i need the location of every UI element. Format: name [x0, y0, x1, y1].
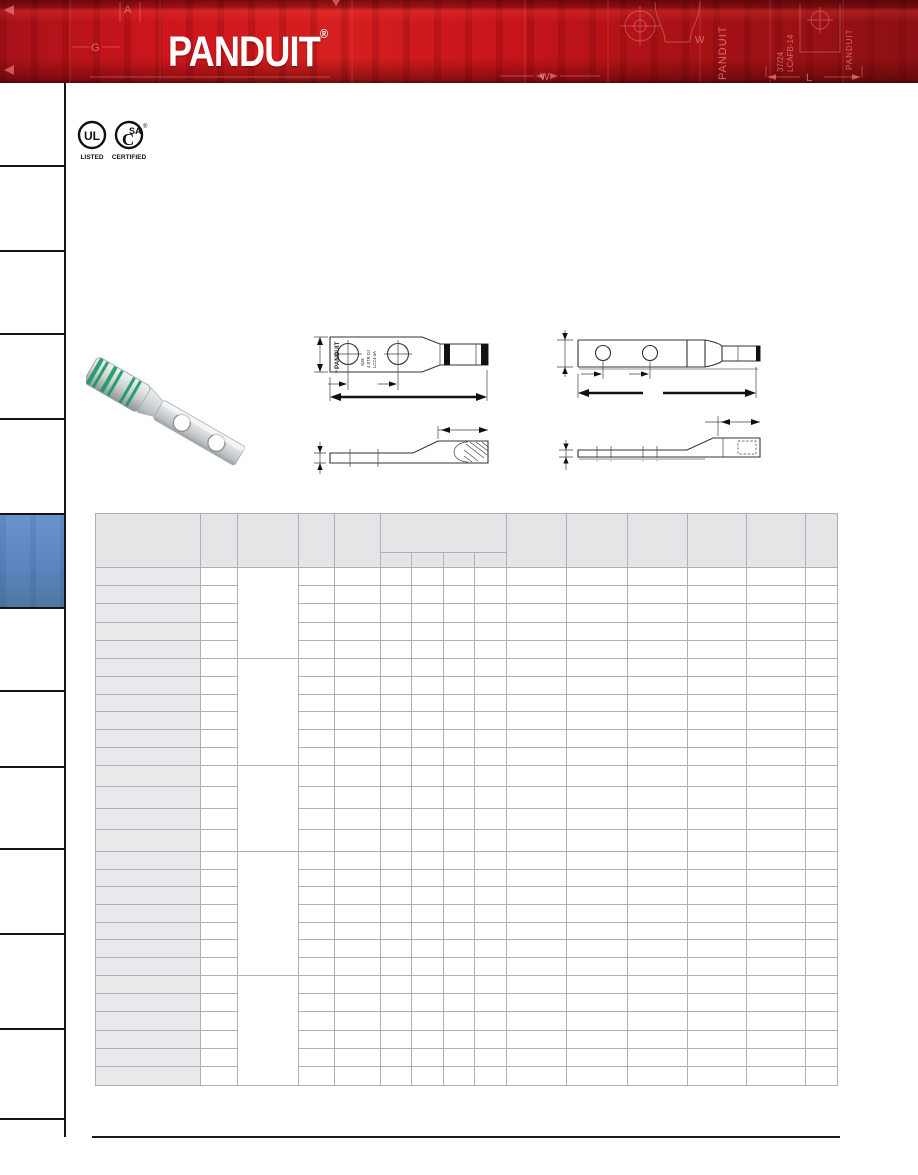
header-cell — [747, 514, 806, 568]
table-cell — [335, 975, 381, 993]
table-row — [96, 748, 838, 766]
motif-vertical-panduit-1: PANDUIT — [717, 26, 729, 80]
sidebar-tab-5 — [0, 418, 64, 513]
row-label-cell — [96, 869, 201, 887]
banner-motif: A G W W L PANDUIT 37/24 LCAFB-14 PANDUIT — [0, 0, 918, 83]
table-cell — [412, 922, 444, 940]
table-cell — [475, 787, 507, 809]
sidebar-tab-3 — [0, 250, 64, 333]
lug-tongue — [153, 400, 245, 466]
table-row — [96, 694, 838, 712]
table-cell — [628, 604, 688, 622]
table-cell — [688, 712, 747, 730]
table-cell — [806, 851, 838, 869]
sidebar-tab-9 — [0, 766, 64, 848]
table-cell — [628, 1012, 688, 1030]
csa-certified-label: CERTIFIED — [112, 154, 147, 161]
table-cell — [444, 1067, 475, 1085]
hole-1 — [596, 346, 611, 361]
table-cell — [747, 712, 806, 730]
table-cell — [335, 830, 381, 852]
table-cell — [806, 568, 838, 586]
table-cell — [299, 808, 335, 830]
table-cell — [335, 604, 381, 622]
table-cell — [475, 1049, 507, 1067]
table-cell — [299, 940, 335, 958]
spec-table — [95, 513, 838, 1086]
table-cell — [747, 787, 806, 809]
table-cell — [688, 568, 747, 586]
header-cell — [201, 514, 238, 568]
table-cell — [507, 994, 567, 1012]
merged-group-cell — [238, 568, 299, 659]
table-cell — [747, 765, 806, 787]
merged-group-cell — [238, 975, 299, 1085]
table-cell — [747, 869, 806, 887]
table-cell — [567, 640, 628, 658]
table-cell — [381, 922, 412, 940]
table-cell — [335, 808, 381, 830]
table-cell — [628, 765, 688, 787]
table-row — [96, 676, 838, 694]
motif-letter-a: A — [124, 4, 132, 16]
table-cell — [201, 694, 238, 712]
header-subcell — [475, 553, 507, 568]
table-cell — [201, 787, 238, 809]
table-cell — [335, 658, 381, 676]
table-cell — [507, 922, 567, 940]
table-row — [96, 869, 838, 887]
table-cell — [381, 730, 412, 748]
table-cell — [688, 940, 747, 958]
table-cell — [475, 622, 507, 640]
table-cell — [628, 640, 688, 658]
table-cell — [628, 568, 688, 586]
table-cell — [628, 787, 688, 809]
row-label-cell — [96, 1012, 201, 1030]
table-cell — [335, 568, 381, 586]
table-cell — [335, 940, 381, 958]
table-cell — [475, 887, 507, 905]
table-cell — [567, 808, 628, 830]
table-cell — [299, 1012, 335, 1030]
table-cell — [688, 958, 747, 976]
csa-registered-mark: ® — [143, 123, 148, 130]
table-cell — [412, 940, 444, 958]
header-cell — [806, 514, 838, 568]
table-cell — [507, 887, 567, 905]
table-cell — [507, 808, 567, 830]
table-row — [96, 1012, 838, 1030]
table-cell — [335, 1067, 381, 1085]
table-cell — [335, 1030, 381, 1048]
table-cell — [507, 851, 567, 869]
table-row — [96, 765, 838, 787]
table-cell — [381, 787, 412, 809]
table-cell — [747, 905, 806, 923]
table-cell — [335, 748, 381, 766]
sidebar-tab-active — [0, 513, 64, 607]
table-cell — [444, 765, 475, 787]
table-cell — [507, 1049, 567, 1067]
table-cell — [747, 808, 806, 830]
sidebar-tab-13 — [0, 1118, 64, 1137]
table-cell — [507, 1067, 567, 1085]
table-cell — [747, 586, 806, 604]
table-row — [96, 851, 838, 869]
table-cell — [299, 905, 335, 923]
table-cell — [201, 975, 238, 993]
spec-table-body — [96, 568, 838, 1086]
table-cell — [567, 1067, 628, 1085]
table-cell — [806, 748, 838, 766]
ul-listed-label: LISTED — [80, 154, 103, 161]
table-cell — [201, 887, 238, 905]
table-cell — [201, 1012, 238, 1030]
table-cell — [747, 1012, 806, 1030]
table-cell — [201, 730, 238, 748]
table-cell — [381, 851, 412, 869]
table-row — [96, 586, 838, 604]
table-cell — [567, 712, 628, 730]
table-cell — [412, 676, 444, 694]
brand-logo: PANDUIT® — [168, 26, 328, 77]
table-cell — [381, 830, 412, 852]
table-cell — [747, 958, 806, 976]
table-cell — [688, 694, 747, 712]
table-cell — [507, 830, 567, 852]
header-cell — [567, 514, 628, 568]
table-cell — [412, 658, 444, 676]
table-cell — [806, 994, 838, 1012]
table-cell — [747, 1030, 806, 1048]
table-cell — [806, 730, 838, 748]
row-label-cell — [96, 748, 201, 766]
table-cell — [806, 940, 838, 958]
table-cell — [688, 748, 747, 766]
table-row — [96, 787, 838, 809]
table-cell — [688, 1012, 747, 1030]
table-cell — [628, 622, 688, 640]
table-cell — [628, 1049, 688, 1067]
table-cell — [381, 568, 412, 586]
table-cell — [507, 694, 567, 712]
barrel-hatching — [464, 442, 488, 462]
header-subcell — [381, 553, 412, 568]
table-cell — [444, 887, 475, 905]
row-label-cell — [96, 940, 201, 958]
sidebar-tab-10 — [0, 848, 64, 933]
table-cell — [201, 994, 238, 1012]
table-cell — [201, 922, 238, 940]
stamp-line-3: LCC4-4A — [372, 351, 377, 368]
table-cell — [299, 748, 335, 766]
row-label-cell — [96, 958, 201, 976]
table-cell — [688, 869, 747, 887]
row-label-cell — [96, 712, 201, 730]
table-cell — [201, 586, 238, 604]
table-cell — [806, 604, 838, 622]
table-cell — [475, 640, 507, 658]
table-cell — [475, 830, 507, 852]
table-cell — [381, 712, 412, 730]
motif-vertical-partno: LCAFB-14 — [786, 34, 795, 72]
table-row — [96, 830, 838, 852]
table-cell — [475, 765, 507, 787]
table-cell — [201, 622, 238, 640]
table-cell — [806, 1030, 838, 1048]
row-label-cell — [96, 568, 201, 586]
table-cell — [444, 940, 475, 958]
table-cell — [412, 640, 444, 658]
table-cell — [201, 1030, 238, 1048]
table-cell — [806, 640, 838, 658]
table-cell — [806, 958, 838, 976]
table-row — [96, 712, 838, 730]
table-cell — [381, 586, 412, 604]
table-cell — [444, 922, 475, 940]
table-cell — [201, 676, 238, 694]
table-cell — [412, 730, 444, 748]
table-cell — [335, 765, 381, 787]
table-cell — [444, 787, 475, 809]
table-cell — [475, 694, 507, 712]
table-cell — [444, 640, 475, 658]
table-cell — [444, 1012, 475, 1030]
table-cell — [412, 586, 444, 604]
table-cell — [747, 940, 806, 958]
table-cell — [299, 830, 335, 852]
table-cell — [444, 748, 475, 766]
table-cell — [567, 922, 628, 940]
table-cell — [201, 604, 238, 622]
table-cell — [688, 830, 747, 852]
header-subcell — [412, 553, 444, 568]
table-cell — [567, 676, 628, 694]
row-label-cell — [96, 730, 201, 748]
table-cell — [444, 851, 475, 869]
table-cell — [688, 604, 747, 622]
table-cell — [381, 905, 412, 923]
table-cell — [747, 658, 806, 676]
table-cell — [475, 994, 507, 1012]
table-cell — [201, 830, 238, 852]
table-cell — [567, 869, 628, 887]
motif-vertical-panduit-2: PANDUIT — [845, 28, 854, 70]
table-cell — [688, 922, 747, 940]
table-cell — [412, 712, 444, 730]
brand-logo-text: PANDUIT — [168, 28, 320, 76]
table-cell — [412, 568, 444, 586]
table-cell — [567, 994, 628, 1012]
table-cell — [412, 958, 444, 976]
table-row — [96, 940, 838, 958]
table-cell — [201, 869, 238, 887]
table-cell — [335, 851, 381, 869]
table-cell — [475, 851, 507, 869]
merged-group-cell — [238, 851, 299, 975]
ul-mark-text: UL — [84, 129, 100, 143]
table-cell — [475, 1030, 507, 1048]
table-cell — [381, 604, 412, 622]
table-cell — [475, 568, 507, 586]
table-cell — [201, 958, 238, 976]
row-label-cell — [96, 676, 201, 694]
table-row — [96, 604, 838, 622]
table-cell — [567, 975, 628, 993]
table-cell — [688, 1030, 747, 1048]
table-cell — [747, 622, 806, 640]
table-cell — [381, 1067, 412, 1085]
table-cell — [507, 604, 567, 622]
table-cell — [475, 730, 507, 748]
table-cell — [507, 640, 567, 658]
motif-letter-w: W — [695, 35, 705, 46]
table-cell — [299, 922, 335, 940]
table-cell — [628, 586, 688, 604]
table-cell — [507, 975, 567, 993]
table-cell — [628, 851, 688, 869]
table-cell — [688, 658, 747, 676]
table-cell — [567, 887, 628, 905]
table-cell — [688, 622, 747, 640]
sidebar-tab-7 — [0, 607, 64, 690]
table-cell — [381, 994, 412, 1012]
header-cell — [688, 514, 747, 568]
sidebar — [0, 83, 66, 1137]
table-row — [96, 975, 838, 993]
table-cell — [335, 958, 381, 976]
table-cell — [806, 808, 838, 830]
table-cell — [688, 787, 747, 809]
table-row — [96, 994, 838, 1012]
table-cell — [335, 1012, 381, 1030]
table-row — [96, 922, 838, 940]
table-cell — [335, 640, 381, 658]
table-cell — [444, 586, 475, 604]
table-cell — [475, 676, 507, 694]
table-cell — [475, 586, 507, 604]
motif-letter-g: G — [91, 42, 100, 54]
table-cell — [299, 975, 335, 993]
table-cell — [628, 869, 688, 887]
row-label-cell — [96, 975, 201, 993]
footer-rule — [92, 1136, 840, 1138]
table-row — [96, 730, 838, 748]
motif-vertical-size: 37/24 — [776, 51, 785, 72]
table-cell — [444, 1030, 475, 1048]
table-cell — [299, 787, 335, 809]
table-cell — [747, 748, 806, 766]
table-cell — [747, 830, 806, 852]
table-cell — [444, 1049, 475, 1067]
table-cell — [381, 1012, 412, 1030]
ul-listed-mark: UL LISTED — [79, 122, 105, 161]
table-cell — [299, 1067, 335, 1085]
table-cell — [381, 676, 412, 694]
table-cell — [567, 748, 628, 766]
table-cell — [628, 712, 688, 730]
table-cell — [381, 658, 412, 676]
drawing-brand-text: PANDUIT — [334, 341, 341, 369]
table-cell — [444, 905, 475, 923]
table-cell — [507, 940, 567, 958]
table-cell — [444, 676, 475, 694]
table-cell — [444, 730, 475, 748]
table-cell — [567, 830, 628, 852]
table-cell — [381, 640, 412, 658]
table-cell — [412, 887, 444, 905]
table-cell — [747, 922, 806, 940]
table-row — [96, 1067, 838, 1085]
table-cell — [299, 568, 335, 586]
table-cell — [747, 887, 806, 905]
table-cell — [567, 622, 628, 640]
table-cell — [381, 694, 412, 712]
table-cell — [567, 940, 628, 958]
table-cell — [475, 975, 507, 993]
table-cell — [507, 730, 567, 748]
table-cell — [628, 994, 688, 1012]
table-cell — [412, 869, 444, 887]
table-cell — [335, 887, 381, 905]
table-cell — [299, 604, 335, 622]
table-cell — [688, 905, 747, 923]
table-cell — [335, 905, 381, 923]
table-cell — [475, 712, 507, 730]
table-cell — [475, 748, 507, 766]
row-label-cell — [96, 586, 201, 604]
table-cell — [567, 787, 628, 809]
table-cell — [567, 1030, 628, 1048]
table-cell — [201, 851, 238, 869]
table-cell — [688, 994, 747, 1012]
table-cell — [628, 676, 688, 694]
table-cell — [381, 622, 412, 640]
table-cell — [412, 1067, 444, 1085]
merged-group-cell — [238, 658, 299, 765]
table-cell — [628, 808, 688, 830]
table-cell — [567, 765, 628, 787]
table-cell — [412, 748, 444, 766]
certification-marks: UL LISTED C SA ® CERTIFIED — [72, 116, 162, 164]
table-cell — [444, 808, 475, 830]
table-row — [96, 1030, 838, 1048]
table-cell — [381, 869, 412, 887]
row-label-cell — [96, 1049, 201, 1067]
header-cell — [628, 514, 688, 568]
row-label-cell — [96, 765, 201, 787]
header-group-cell — [381, 514, 507, 553]
table-cell — [412, 1030, 444, 1048]
table-cell — [628, 748, 688, 766]
table-cell — [412, 830, 444, 852]
table-cell — [507, 622, 567, 640]
row-label-cell — [96, 905, 201, 923]
table-cell — [567, 586, 628, 604]
row-label-cell — [96, 830, 201, 852]
table-cell — [567, 905, 628, 923]
table-cell — [747, 975, 806, 993]
table-cell — [628, 830, 688, 852]
table-cell — [444, 958, 475, 976]
table-cell — [507, 1030, 567, 1048]
table-cell — [444, 994, 475, 1012]
header-cell — [507, 514, 567, 568]
sidebar-tab-4 — [0, 333, 64, 418]
csa-sa-text: SA — [129, 126, 142, 136]
table-cell — [299, 994, 335, 1012]
